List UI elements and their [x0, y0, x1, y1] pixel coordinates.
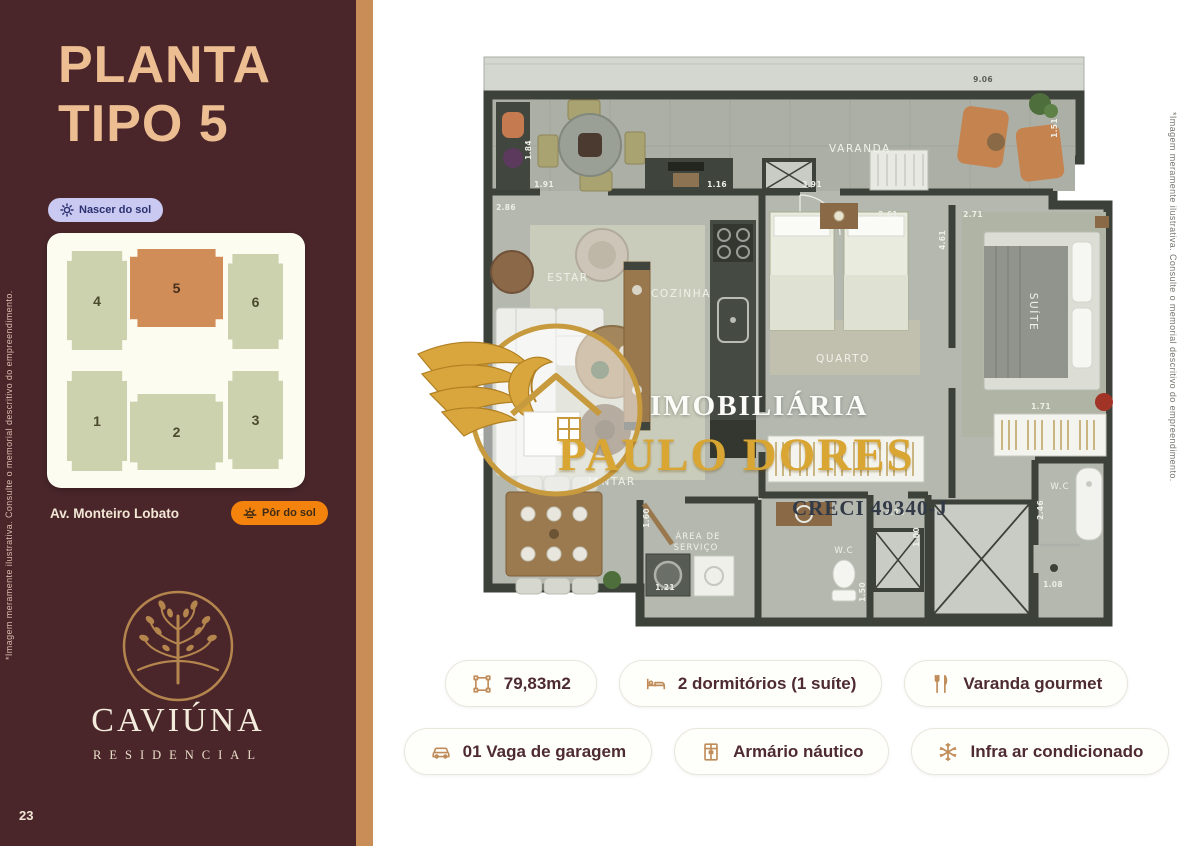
balcony-parapet — [484, 57, 1084, 95]
dim-191: 1.91 — [534, 180, 554, 189]
area-icon — [471, 673, 493, 695]
feature-label: Armário náutico — [733, 742, 863, 762]
sidebar: *Imagem meramente ilustrativa. Consulte … — [0, 0, 356, 846]
sunset-icon — [243, 506, 257, 520]
feature-area: 79,83m2 — [445, 660, 597, 707]
room-label-suite: SUÍTE — [1027, 293, 1040, 332]
room-label-jantar: JANTAR — [587, 476, 636, 488]
room-label-servico-1: ÁREA DE — [675, 530, 720, 542]
dim-271: 2.71 — [963, 210, 983, 219]
floor-plan: VARANDA ESTAR COZINHA QUARTO SUÍTE JANTA… — [440, 40, 1140, 640]
feature-varanda: Varanda gourmet — [904, 660, 1128, 707]
page-title-line1: PLANTA — [58, 36, 271, 95]
dim-121: 1.21 — [655, 583, 675, 592]
feature-garage: 01 Vaga de garagem — [404, 728, 652, 775]
dim-461: 4.61 — [938, 230, 947, 250]
bed-icon — [645, 673, 667, 695]
dim-246: 2.46 — [1036, 500, 1045, 520]
dim-150: 1.50 — [858, 582, 867, 602]
room-label-quarto: QUARTO — [816, 353, 870, 365]
site-plan-unit-5-highlighted: 5 — [130, 249, 223, 327]
brand-subtitle: RESIDENCIAL — [0, 748, 356, 763]
room-label-estar: ESTAR — [547, 272, 588, 284]
room-label-wc: W.C — [834, 546, 853, 556]
dim-261: 2.61 — [878, 210, 898, 219]
dim-160: 1.60 — [642, 508, 651, 528]
snowflake-icon — [937, 741, 959, 763]
dim-226: 2.26 — [885, 508, 905, 517]
feature-row-2: 01 Vaga de garagem Armário náutico Infra… — [404, 728, 1170, 775]
sun-icon — [60, 203, 74, 217]
feature-row-1: 79,83m2 2 dormitórios (1 suíte) Varanda … — [445, 660, 1129, 707]
feature-label: 79,83m2 — [504, 674, 571, 694]
feature-label: Varanda gourmet — [963, 674, 1102, 694]
feature-badges: 79,83m2 2 dormitórios (1 suíte) Varanda … — [373, 660, 1200, 775]
sunrise-badge: Nascer do sol — [48, 198, 163, 222]
accent-strip — [356, 0, 373, 846]
sunset-label: Pôr do sol — [262, 507, 316, 519]
dim-184: 1.84 — [524, 140, 533, 160]
dim-100: 1.00 — [912, 527, 921, 547]
suite-furniture — [984, 216, 1113, 456]
feature-ac: Infra ar condicionado — [911, 728, 1169, 775]
feature-label: 2 dormitórios (1 suíte) — [678, 674, 857, 694]
site-plan-card: 4 5 6 1 2 3 — [47, 233, 305, 488]
page-number: 23 — [19, 808, 33, 823]
site-plan-unit-3: 3 — [228, 371, 283, 469]
page-title: PLANTA TIPO 5 — [58, 36, 271, 154]
feature-dorms: 2 dormitórios (1 suíte) — [619, 660, 883, 707]
dim-286: 2.86 — [496, 203, 516, 212]
brand-name: CAVIÚNA — [0, 702, 356, 740]
room-label-varanda: VARANDA — [829, 143, 891, 155]
tree-logo-icon — [118, 586, 238, 706]
dim-151: 1.51 — [1050, 118, 1059, 138]
brand-block: CAVIÚNA RESIDENCIAL — [0, 586, 356, 763]
feature-wardrobe: Armário náutico — [674, 728, 889, 775]
room-label-servico-2: SERVIÇO — [674, 543, 719, 553]
dim-906: 9.06 — [973, 75, 993, 84]
dim-601: 6.01 — [476, 432, 485, 452]
site-plan-unit-2: 2 — [130, 394, 223, 470]
sunrise-label: Nascer do sol — [79, 204, 151, 216]
dim-171: 1.71 — [1031, 402, 1051, 411]
street-label: Av. Monteiro Lobato — [50, 506, 179, 521]
car-icon — [430, 741, 452, 763]
dim-116: 1.16 — [707, 180, 727, 189]
cutlery-icon — [930, 673, 952, 695]
site-plan-unit-6: 6 — [228, 254, 283, 349]
feature-label: Infra ar condicionado — [970, 742, 1143, 762]
wardrobe-icon — [700, 741, 722, 763]
page-title-line2: TIPO 5 — [58, 95, 271, 154]
room-label-cozinha: COZINHA — [651, 288, 711, 300]
room-label-wc-suite: W.C — [1050, 482, 1069, 492]
feature-label: 01 Vaga de garagem — [463, 742, 626, 762]
sunset-badge: Pôr do sol — [231, 501, 328, 525]
site-plan-unit-1: 1 — [67, 371, 127, 471]
disclaimer-right: *Imagem meramente ilustrativa. Consulte … — [1168, 112, 1178, 492]
dim-391: 3.91 — [802, 180, 822, 189]
dim-108: 1.08 — [1043, 580, 1063, 589]
brochure-page: *Imagem meramente ilustrativa. Consulte … — [0, 0, 1200, 846]
site-plan-unit-4: 4 — [67, 251, 127, 350]
